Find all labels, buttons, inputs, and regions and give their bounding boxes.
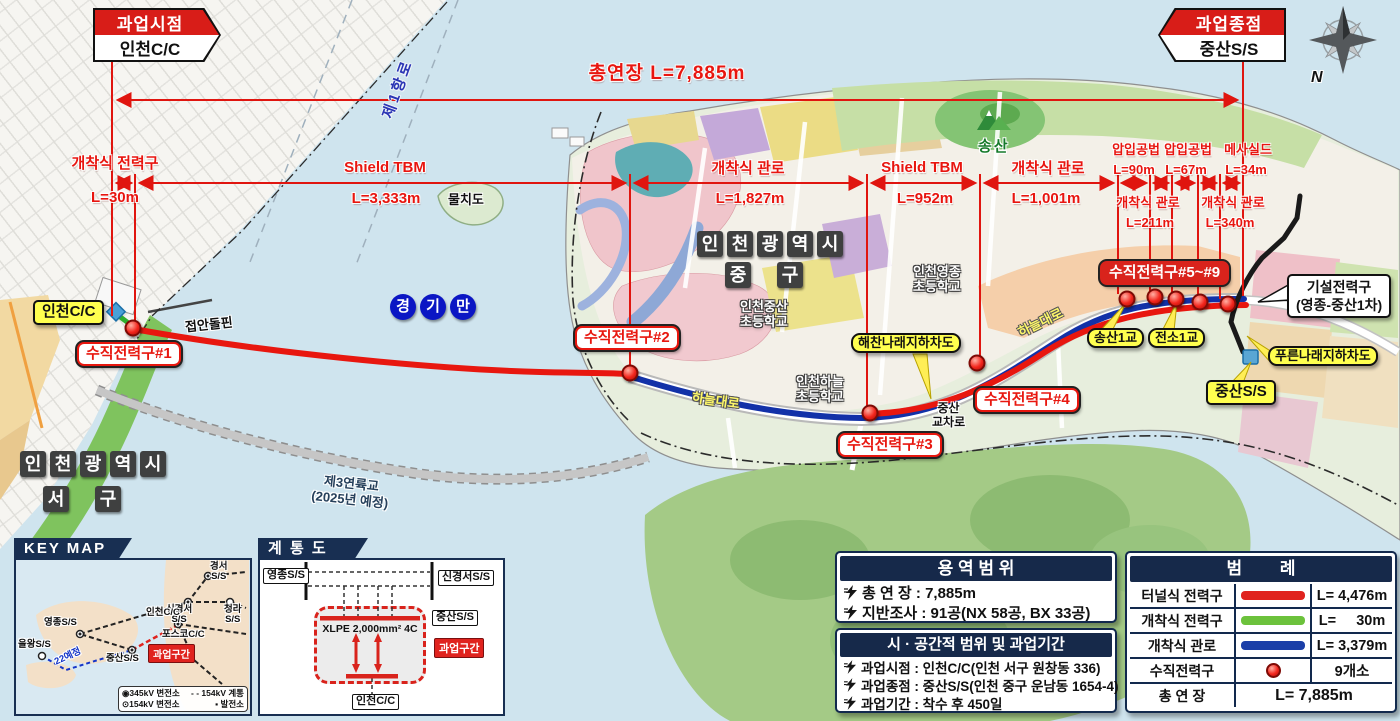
period-title: 시 · 공간적 범위 및 과업기간 bbox=[840, 633, 1112, 657]
diagram-node-yeongjong: 영종S/S bbox=[263, 568, 309, 584]
songsan-bridge-label: 송산1교 bbox=[1087, 328, 1144, 348]
seo-gu-label-line2: 서구 bbox=[43, 486, 147, 512]
keymap-project-section-badge: 과업구간 bbox=[148, 644, 195, 663]
compass-rose-icon bbox=[1309, 6, 1377, 74]
section-1-method: Shield TBM bbox=[344, 160, 426, 175]
legend-row-value: L= 4,476m bbox=[1312, 584, 1392, 607]
section-9-length: L=340m bbox=[1206, 216, 1255, 229]
system-diagram-body: 영종S/S 신경서S/S 중산S/S 인천C/C 과업구간 XLPE 2,000… bbox=[258, 558, 505, 716]
bolt-icon bbox=[844, 678, 856, 692]
route-tunnel-red-1 bbox=[134, 329, 631, 374]
power-routes bbox=[119, 196, 1300, 418]
jung-gu-label-line2: 중구 bbox=[725, 262, 829, 288]
project-start-banner: 과업시점 인천C/C bbox=[93, 8, 221, 62]
scope-row-survey: 지반조사 : 91공(NX 58공, BX 33공) bbox=[840, 602, 1112, 622]
section-0-length: L=30m bbox=[91, 190, 139, 205]
shaft-3-marker bbox=[862, 405, 879, 422]
project-start-name: 인천C/C bbox=[95, 35, 219, 60]
shaft-9-marker bbox=[1220, 296, 1237, 313]
section-7-method: 메사실드 bbox=[1224, 143, 1272, 156]
shaft-2-label: 수직전력구#2 bbox=[575, 326, 679, 350]
project-end-banner: 과업종점 중산S/S bbox=[1158, 8, 1286, 62]
jungsan-ss-label: 중산S/S bbox=[1206, 380, 1276, 405]
haechan-underpass-label: 해찬나래지하차도 bbox=[851, 333, 961, 353]
period-row-end: 과업종점 : 중산S/S(인천 중구 운남동 1654-4) bbox=[840, 676, 1112, 694]
section-1-length: L=3,333m bbox=[352, 191, 421, 206]
legend-row-value: L= 30m bbox=[1312, 609, 1392, 632]
keymap-station-jungsan: 중산S/S bbox=[106, 654, 139, 664]
legend-title: 범 례 bbox=[1130, 556, 1392, 582]
shaft-circle-icon bbox=[1236, 659, 1310, 682]
legend-row-value: 9개소 bbox=[1312, 659, 1392, 682]
bolt-icon bbox=[844, 660, 856, 674]
jungsan-school-label: 인천중산초등학교 bbox=[740, 300, 788, 330]
pier-label: 접안돌핀 bbox=[184, 315, 233, 336]
section-7-length: L=34m bbox=[1225, 163, 1267, 176]
keymap-station-yeongjong: 영종S/S bbox=[44, 618, 77, 628]
legend-panel: 범 례 터널식 전력구 L= 4,476m 개착식 전력구 L= 30m 개착식… bbox=[1125, 551, 1397, 713]
keymap-station-incheon: 인천C/C bbox=[146, 608, 180, 618]
keymap-station-cheongna: 청라S/S bbox=[224, 605, 241, 625]
opencut-line-icon bbox=[1236, 609, 1310, 632]
system-diagram-panel: 계 통 도 영종S/S 신 bbox=[258, 538, 505, 716]
section-9-method: 개착식 관로 bbox=[1201, 196, 1264, 209]
jungsan-ss-marker bbox=[1243, 350, 1258, 364]
keymap-station-eolwang: 을왕S/S bbox=[18, 640, 51, 650]
section-8-length: L=211m bbox=[1126, 216, 1174, 229]
shaft-5-marker bbox=[1119, 291, 1136, 308]
diagram-node-singyeongseo: 신경서S/S bbox=[438, 570, 494, 586]
project-end-title: 과업종점 bbox=[1160, 10, 1284, 35]
shaft-6-marker bbox=[1147, 289, 1164, 306]
section-3-length: L=952m bbox=[897, 191, 953, 206]
section-4-length: L=1,001m bbox=[1012, 191, 1081, 206]
haneul-road-label-2: 하늘대로 bbox=[1014, 302, 1065, 340]
diagram-project-section-badge: 과업구간 bbox=[434, 638, 484, 658]
pureun-underpass-label: 푸른나래지하차도 bbox=[1268, 346, 1378, 366]
section-0-method: 개착식 전력구 bbox=[72, 156, 159, 171]
keymap-legend: ◉345kV 변전소 - - 154kV 계통 ⊙154kV 변전소 ▪ 발전소 bbox=[118, 686, 248, 712]
section-3-method: Shield TBM bbox=[881, 160, 963, 175]
total-length-label: 총연장 L=7,885m bbox=[589, 64, 746, 83]
legend-row-label: 개착식 전력구 bbox=[1130, 609, 1234, 632]
period-row-duration: 과업기간 : 착수 후 450일 bbox=[840, 694, 1112, 712]
shaft-3-label: 수직전력구#3 bbox=[838, 433, 942, 457]
shaft-4-marker bbox=[969, 355, 986, 372]
scope-row-total: 총 연 장 : 7,885m bbox=[840, 582, 1112, 602]
mountain-icon bbox=[977, 110, 1011, 130]
shaft-1-marker bbox=[125, 320, 142, 337]
gyeonggi-bay-label: 경기만 bbox=[390, 294, 480, 320]
diagram-node-incheon: 인천C/C bbox=[352, 694, 399, 710]
compass-north-label: N bbox=[1311, 68, 1323, 87]
legend-row-label: 총 연 장 bbox=[1130, 684, 1234, 707]
tunnel-line-icon bbox=[1236, 584, 1310, 607]
section-5-length: L=90m bbox=[1113, 163, 1155, 176]
songsan-mountain-label: 송산 bbox=[978, 135, 1010, 156]
section-8-method: 개착식 관로 bbox=[1116, 196, 1179, 209]
shaft-7-marker bbox=[1168, 291, 1185, 308]
keymap-body: 경서S/S 신경서S/S 청라S/S 영종S/S 인천C/C 포스코C/C 을왕… bbox=[14, 558, 252, 716]
legend-row-value: L= 7,885m bbox=[1236, 684, 1392, 707]
period-panel: 시 · 공간적 범위 및 과업기간 과업시점 : 인천C/C(인천 서구 원창동… bbox=[835, 628, 1117, 713]
section-4-method: 개착식 관로 bbox=[1011, 161, 1084, 176]
seo-gu-label-line1: 인천광역시 bbox=[20, 451, 170, 477]
period-row-start: 과업시점 : 인천C/C(인천 서구 원창동 336) bbox=[840, 658, 1112, 676]
mulchido-island-label: 물치도 bbox=[448, 192, 484, 208]
section-6-length: L=67m bbox=[1165, 163, 1207, 176]
jungsan-junction-label: 중산교차로 bbox=[932, 401, 965, 430]
duct-line-icon bbox=[1236, 634, 1310, 657]
section-2-method: 개착식 관로 bbox=[711, 161, 784, 176]
cable-spec-label: XLPE 2,000mm² 4C bbox=[314, 623, 426, 635]
section-5-method: 압입공법 bbox=[1112, 143, 1160, 156]
keymap-title: KEY MAP bbox=[14, 538, 132, 560]
keymap-station-posco: 포스코C/C bbox=[162, 630, 205, 640]
dash-line-icon: - - bbox=[191, 688, 199, 698]
legend-table: 터널식 전력구 L= 4,476m 개착식 전력구 L= 30m 개착식 관로 … bbox=[1130, 584, 1392, 707]
section-2-length: L=1,827m bbox=[716, 191, 785, 206]
yeongjong-island bbox=[552, 79, 1400, 540]
section-6-method: 압입공법 bbox=[1164, 143, 1212, 156]
yeongjong-school-label: 인천영종초등학교 bbox=[913, 265, 961, 295]
jung-gu-label-line1: 인천광역시 bbox=[697, 231, 847, 257]
scope-title: 용 역 범 위 bbox=[840, 556, 1112, 581]
plant-icon: ▪ bbox=[215, 699, 218, 709]
route-map-screenshot: 과업시점 인천C/C 과업종점 중산S/S N 총연장 L=7,885m 개착식… bbox=[0, 0, 1400, 721]
bolt-icon bbox=[844, 696, 856, 710]
third-yeonryuk-bridge bbox=[97, 390, 648, 479]
haneul-road-label-1: 하늘대로 bbox=[691, 387, 741, 412]
shaft-2-marker bbox=[622, 365, 639, 382]
incheon-cc-label: 인천C/C bbox=[33, 300, 104, 325]
keymap-panel: KEY MAP bbox=[14, 538, 252, 716]
legend-row-label: 수직전력구 bbox=[1130, 659, 1234, 682]
shaft-8-marker bbox=[1192, 294, 1209, 311]
jeonso-bridge-label: 전소1교 bbox=[1148, 328, 1205, 348]
shaft-5-9-label: 수직전력구#5~#9 bbox=[1100, 261, 1229, 285]
diagram-node-jungsan: 중산S/S bbox=[432, 610, 478, 626]
haneul-school-label: 인천하늘초등학교 bbox=[796, 375, 844, 405]
scope-panel: 용 역 범 위 총 연 장 : 7,885m 지반조사 : 91공(NX 58공… bbox=[835, 551, 1117, 623]
bolt-icon bbox=[844, 585, 857, 600]
shaft-1-label: 수직전력구#1 bbox=[77, 342, 181, 366]
existing-tunnel-label: 기설전력구(영종-중산1차) bbox=[1287, 274, 1391, 318]
project-end-name: 중산S/S bbox=[1160, 35, 1284, 60]
legend-row-label: 개착식 관로 bbox=[1130, 634, 1234, 657]
keymap-station-gyeongseo: 경서S/S bbox=[210, 562, 227, 582]
legend-row-label: 터널식 전력구 bbox=[1130, 584, 1234, 607]
bolt-icon bbox=[844, 605, 857, 620]
shaft-4-label: 수직전력구#4 bbox=[975, 388, 1079, 412]
bridge3-label: 제3연륙교(2025년 예정) bbox=[311, 472, 391, 512]
project-start-title: 과업시점 bbox=[95, 10, 219, 35]
legend-row-value: L= 3,379m bbox=[1312, 634, 1392, 657]
system-diagram-title: 계 통 도 bbox=[258, 538, 368, 560]
